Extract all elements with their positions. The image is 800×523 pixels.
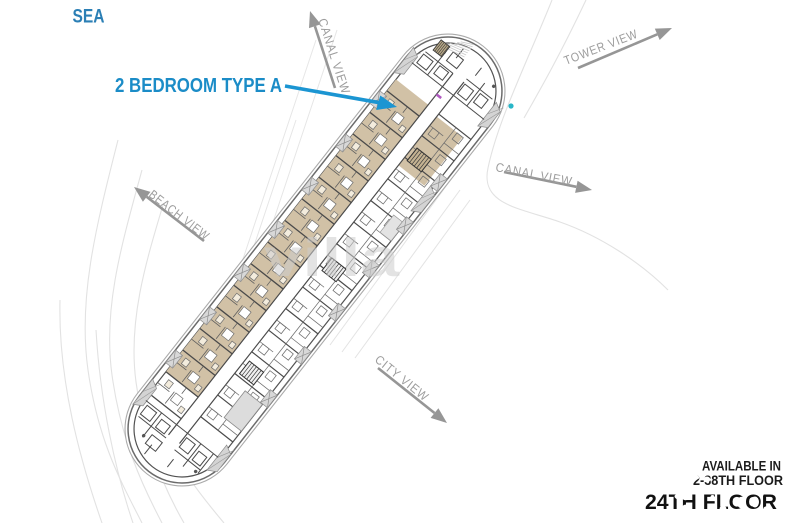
svg-text:CANAL VIEW: CANAL VIEW [494,160,573,189]
svg-text:villa: villa [264,228,400,288]
svg-text:AVAILABLE IN: AVAILABLE IN [702,458,781,473]
svg-text:BEACH VIEW: BEACH VIEW [146,187,212,243]
svg-text:SEA: SEA [73,7,105,28]
svg-text:2 BEDROOM TYPE A: 2 BEDROOM TYPE A [115,75,282,97]
svg-text:CITY VIEW: CITY VIEW [372,352,431,404]
